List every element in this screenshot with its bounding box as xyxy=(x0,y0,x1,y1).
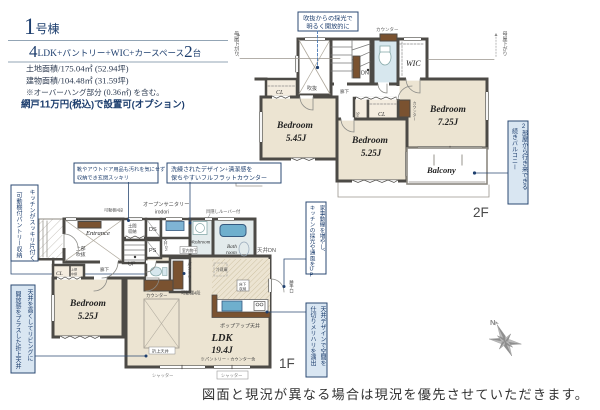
svg-text:DS: DS xyxy=(149,227,157,233)
svg-text:家事動線を増やし、: 家事動線を増やし、 xyxy=(319,204,326,255)
svg-text:UP: UP xyxy=(128,262,136,268)
svg-text:天井デザインで空間を: 天井デザインで空間を xyxy=(319,306,326,366)
svg-text:1F: 1F xyxy=(279,356,295,371)
svg-text:母屋下がり: 母屋下がり xyxy=(502,31,508,57)
svg-text:※パントリー・カウンター含: ※パントリー・カウンター含 xyxy=(201,356,256,363)
svg-text:room: room xyxy=(226,250,237,256)
svg-text:5.25J: 5.25J xyxy=(361,148,382,158)
svg-text:土地面積/175.04㎡ (52.94坪): 土地面積/175.04㎡ (52.94坪) xyxy=(26,64,129,74)
svg-text:シャッター: シャッター xyxy=(152,372,173,379)
svg-text:折上天井: 折上天井 xyxy=(152,348,169,355)
svg-text:可動棚付パントリー収納: 可動棚付パントリー収納 xyxy=(15,192,22,259)
svg-text:Bedroom: Bedroom xyxy=(351,136,388,146)
svg-text:建物面積/104.48㎡ (31.59坪): 建物面積/104.48㎡ (31.59坪) xyxy=(26,76,129,86)
svg-text:5.45J: 5.45J xyxy=(286,133,307,143)
svg-text:4LDK+パントリー+WIC+カースペース2台: 4LDK+パントリー+WIC+カースペース2台 xyxy=(29,42,201,61)
svg-text:キッチンがスッキリ片付く: キッチンがスッキリ片付く xyxy=(28,189,35,261)
svg-text:廊下: 廊下 xyxy=(100,266,109,273)
svg-text:Balcony: Balcony xyxy=(426,165,456,175)
svg-text:網戸11万円(税込)で設置可(オプション): 網戸11万円(税込)で設置可(オプション) xyxy=(21,99,185,111)
svg-text:5.25J: 5.25J xyxy=(78,311,99,321)
svg-text:ポップアップ天井: ポップアップ天井 xyxy=(220,323,260,330)
svg-text:カウンター: カウンター xyxy=(376,26,399,33)
svg-text:オープンサニタリー: オープンサニタリー xyxy=(143,200,189,208)
svg-text:Sto.: Sto. xyxy=(356,112,361,118)
svg-text:Washroom: Washroom xyxy=(190,241,211,246)
svg-text:床下: 床下 xyxy=(239,282,247,287)
svg-text:洗練されたデザイン+清潔感を: 洗練されたデザイン+清潔感を xyxy=(171,166,252,174)
svg-text:7.25J: 7.25J xyxy=(438,117,459,127)
svg-text:吹抜: 吹抜 xyxy=(307,85,317,92)
svg-text:続きバルコニー: 続きバルコニー xyxy=(511,127,518,170)
svg-text:N: N xyxy=(490,318,495,327)
svg-text:収納: 収納 xyxy=(239,286,247,291)
svg-text:廊下: 廊下 xyxy=(340,88,349,95)
svg-text:上棚: 上棚 xyxy=(71,267,77,272)
svg-text:2部屋から行き来できる: 2部屋から行き来できる xyxy=(521,124,528,190)
svg-text:靴やアウトドア用品も汚れを気にせず: 靴やアウトドア用品も汚れを気にせず xyxy=(77,165,165,173)
svg-text:中棚: 中棚 xyxy=(71,271,77,276)
svg-text:CL: CL xyxy=(276,90,284,96)
svg-text:カウンター: カウンター xyxy=(146,292,167,299)
svg-text:図面と現況が異なる場合は現況を優先させていただきます。: 図面と現況が異なる場合は現況を優先させていただきます。 xyxy=(202,387,589,402)
svg-text:明るく開放的に: 明るく開放的に xyxy=(306,23,349,31)
svg-text:天井DN: 天井DN xyxy=(257,246,276,254)
svg-text:天井DN: 天井DN xyxy=(163,238,168,251)
svg-text:LDK: LDK xyxy=(211,333,234,344)
svg-text:Bedroom: Bedroom xyxy=(429,105,466,115)
svg-text:開放感をプラスした折上天井: 開放感をプラスした折上天井 xyxy=(14,291,21,370)
svg-text:Bedroom: Bedroom xyxy=(276,121,313,131)
svg-text:キッチンの採光や通風をUP: キッチンの採光や通風をUP xyxy=(309,205,316,279)
svg-text:DN: DN xyxy=(361,71,369,77)
svg-text:シャッター: シャッター xyxy=(221,372,242,379)
svg-text:上部: 上部 xyxy=(76,245,86,252)
svg-text:※オーバーハング部分 (0.36㎡) を含む。: ※オーバーハング部分 (0.36㎡) を含む。 xyxy=(26,87,164,97)
svg-text:CL: CL xyxy=(56,271,63,277)
svg-text:WIC: WIC xyxy=(406,59,421,68)
svg-text:PS: PS xyxy=(149,248,157,254)
svg-text:仕切りメリハリを演出: 仕切りメリハリを演出 xyxy=(309,305,316,367)
svg-text:吹抜からの採光で: 吹抜からの採光で xyxy=(303,15,353,23)
svg-text:Bedroom: Bedroom xyxy=(69,299,106,309)
svg-text:天井を高くしてリビングに: 天井を高くしてリビングに xyxy=(26,289,33,361)
svg-text:Entrance: Entrance xyxy=(85,230,110,237)
svg-text:室内物干: 室内物干 xyxy=(182,248,197,253)
svg-text:CL: CL xyxy=(378,112,386,118)
svg-text:勝手口: 勝手口 xyxy=(289,279,295,294)
svg-text:19.4J: 19.4J xyxy=(211,346,233,356)
svg-text:冷蔵庫: 冷蔵庫 xyxy=(216,267,228,272)
svg-text:irodori: irodori xyxy=(155,210,169,216)
svg-text:2F: 2F xyxy=(473,205,489,220)
svg-text:可動棚4段: 可動棚4段 xyxy=(181,290,201,297)
svg-text:吹抜: 吹抜 xyxy=(76,251,86,258)
svg-text:収納でき玄関スッキリ: 収納でき玄関スッキリ xyxy=(77,174,129,182)
svg-text:可動棚4段: 可動棚4段 xyxy=(104,207,124,214)
svg-text:カウンター: カウンター xyxy=(413,101,418,121)
svg-text:パントリー: パントリー xyxy=(188,262,193,283)
svg-text:1号棟: 1号棟 xyxy=(24,14,60,39)
svg-text:収納: 収納 xyxy=(128,228,137,235)
svg-text:目隠しルーバー付: 目隠しルーバー付 xyxy=(206,208,241,215)
svg-text:保ちやすいフルフラットカウンター: 保ちやすいフルフラットカウンター xyxy=(171,174,267,182)
